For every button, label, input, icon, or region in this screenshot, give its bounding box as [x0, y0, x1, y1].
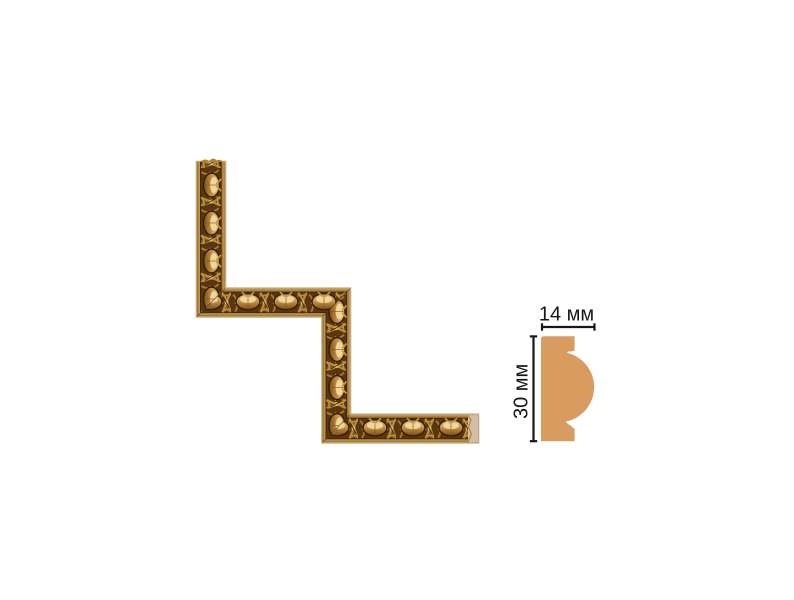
- svg-text:30 мм: 30 мм: [510, 364, 532, 419]
- svg-text:14 мм: 14 мм: [539, 303, 594, 325]
